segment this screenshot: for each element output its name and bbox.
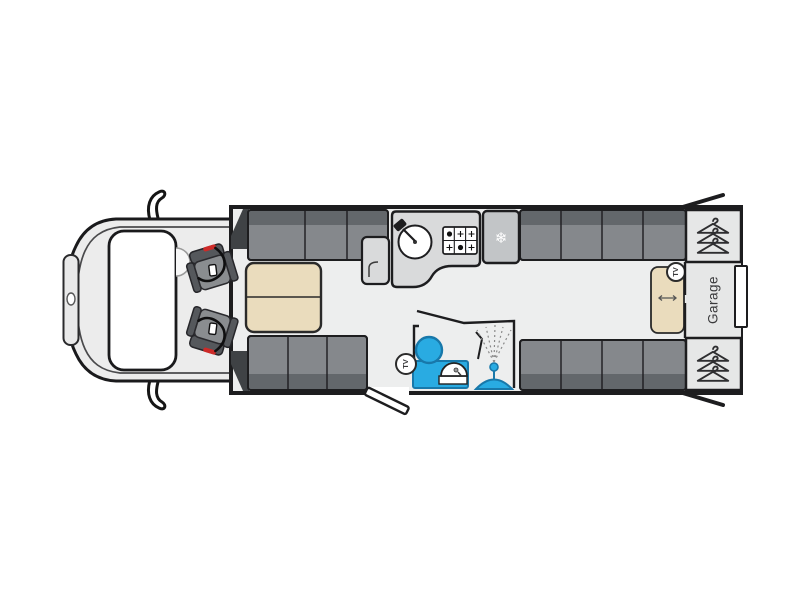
floorplan-page: ❄ TV (0, 0, 800, 600)
tv-point-bathroom: TV (396, 354, 416, 374)
sofa-backrest-bottom (248, 374, 367, 390)
motorhome-floorplan: ❄ TV (0, 0, 800, 600)
toilet-bowl (416, 337, 442, 363)
washbasin-tray (439, 376, 467, 384)
front-badge (67, 293, 75, 305)
windscreen (109, 231, 176, 370)
tv-label: TV (401, 359, 410, 369)
hob-icon (443, 227, 477, 254)
snowflake-icon: ❄ (495, 230, 508, 247)
garage-rear-hatch (735, 266, 747, 327)
garage-label: Garage (706, 276, 721, 324)
rear-section: Garage (685, 210, 747, 390)
wing-mirror-top-icon (148, 191, 164, 220)
wardrobe-bottom (686, 338, 741, 390)
basin-tap (454, 368, 458, 372)
tv-point-bedroom: TV (667, 263, 685, 281)
tv-label: TV (671, 267, 680, 277)
shower-head-icon (490, 363, 498, 371)
kitchen-cupboard (362, 237, 389, 284)
wing-mirror-bottom-icon (148, 380, 164, 409)
wardrobe-top (686, 210, 741, 262)
sofa-backrest-top (248, 210, 388, 225)
